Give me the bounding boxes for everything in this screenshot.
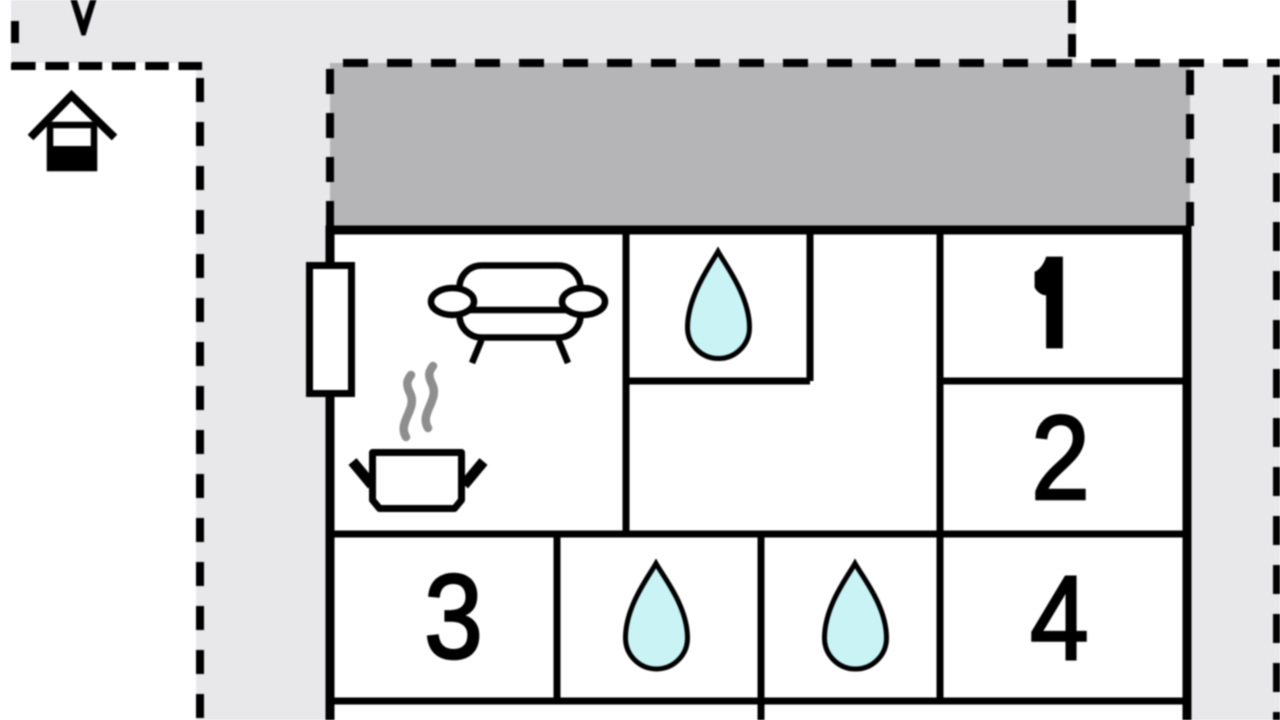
svg-text:4: 4	[1030, 551, 1089, 685]
svg-text:2: 2	[1031, 391, 1090, 525]
svg-text:3: 3	[424, 550, 483, 684]
